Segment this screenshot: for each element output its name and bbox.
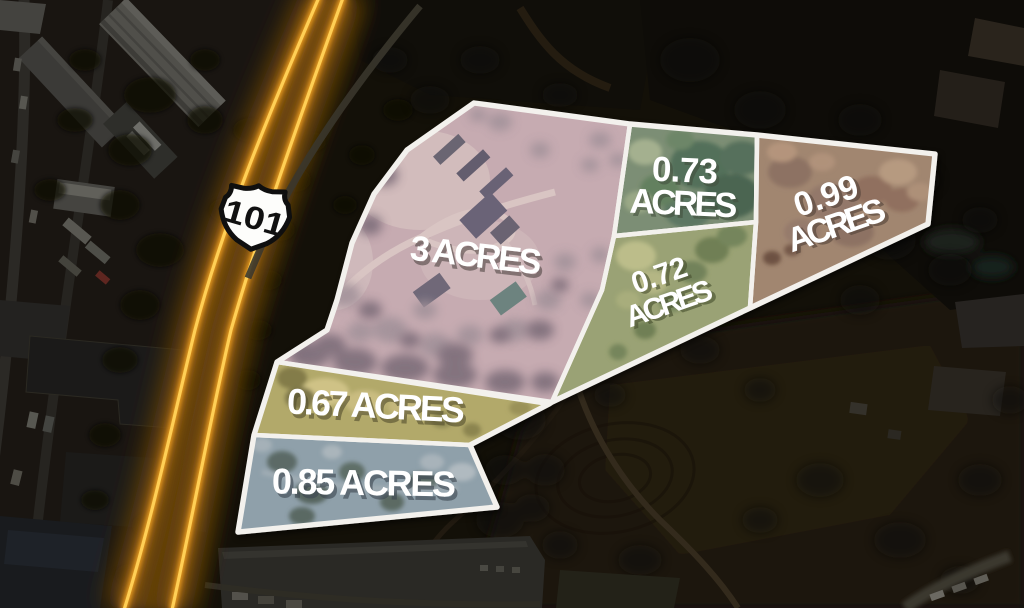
svg-text:ACRES: ACRES <box>629 182 739 226</box>
svg-text:0.85 ACRES: 0.85 ACRES <box>272 460 457 504</box>
